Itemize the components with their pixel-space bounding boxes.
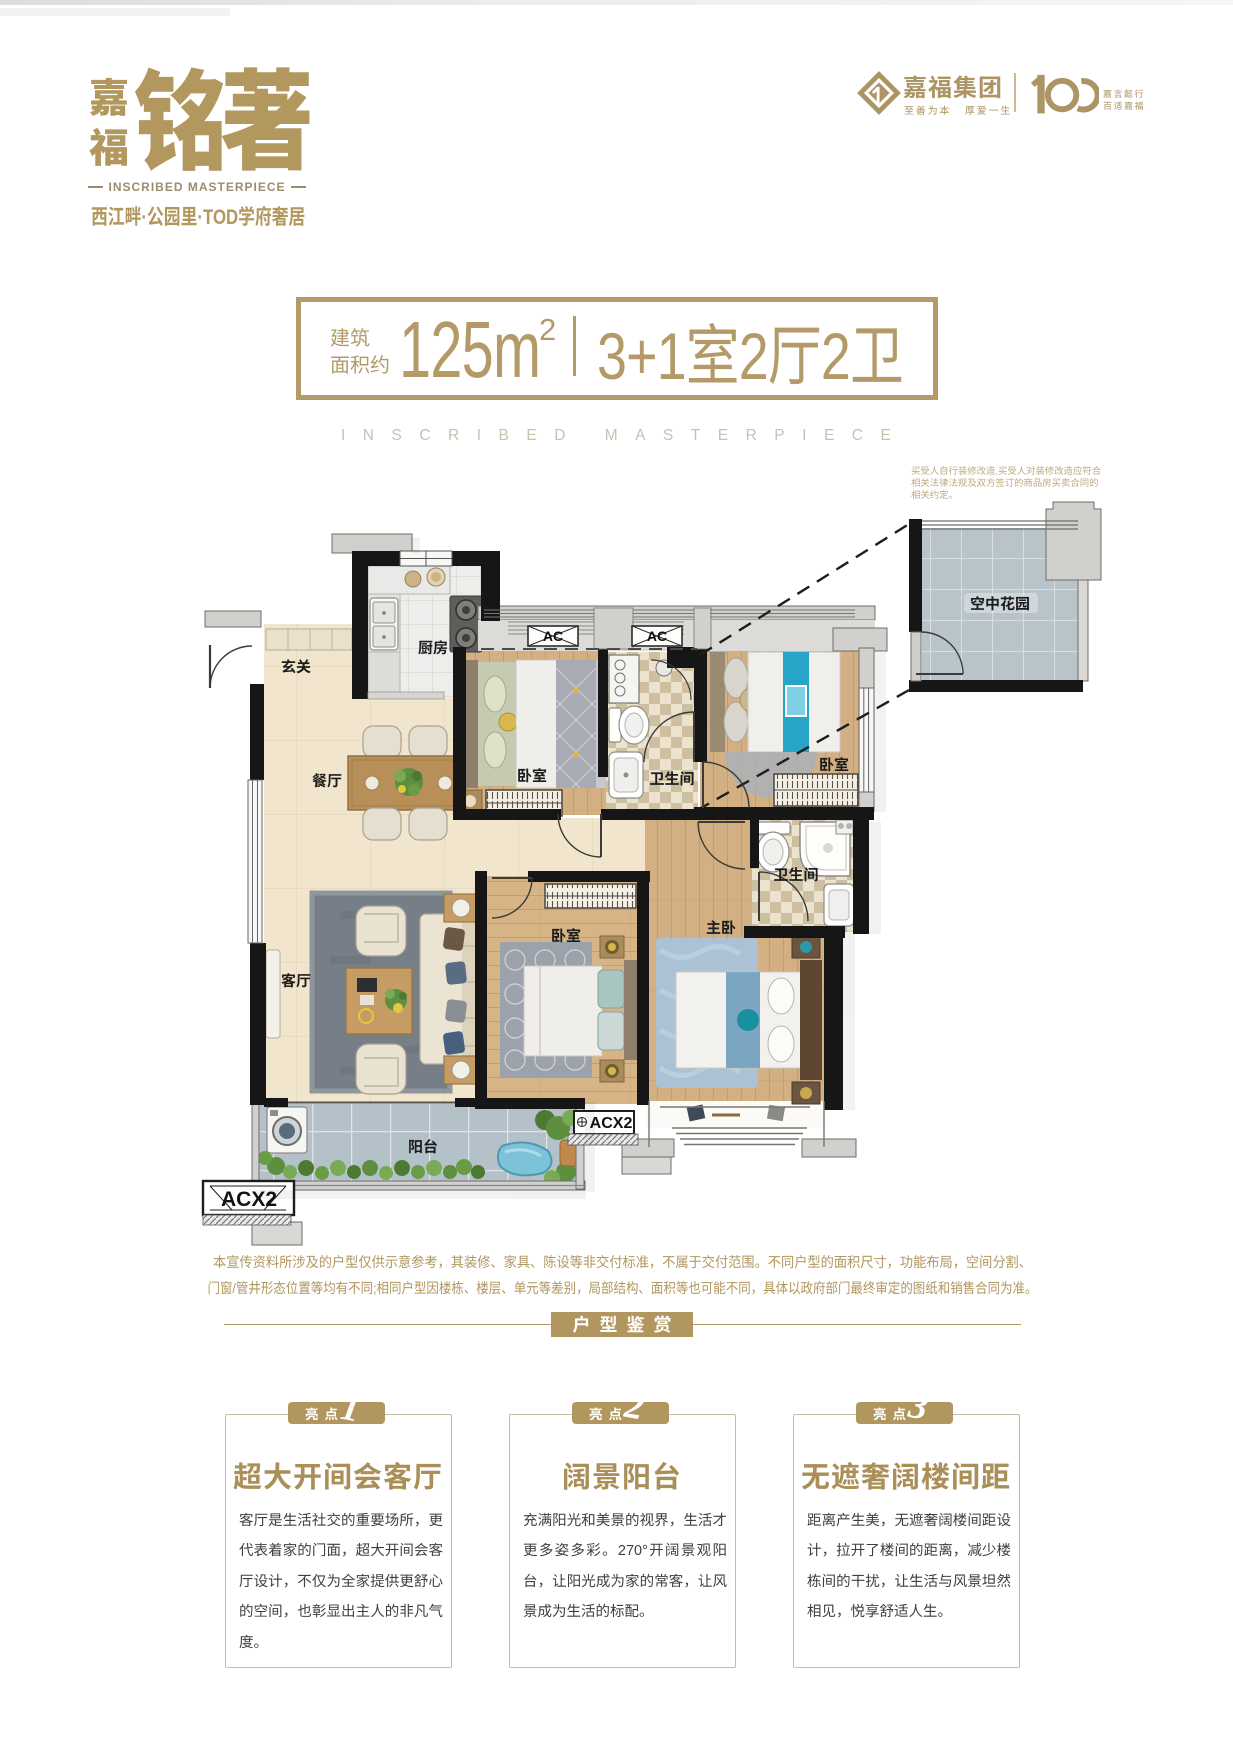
svg-text:客厅: 客厅 — [281, 970, 311, 991]
svg-text:ACX2: ACX2 — [590, 1115, 633, 1132]
svg-text:AC: AC — [647, 628, 667, 644]
svg-text:餐厅: 餐厅 — [312, 770, 342, 791]
svg-text:主卧: 主卧 — [706, 917, 736, 938]
svg-text:AC: AC — [543, 628, 563, 644]
svg-text:空中花园: 空中花园 — [970, 593, 1030, 614]
svg-text:厨房: 厨房 — [418, 637, 448, 658]
svg-text:卧室: 卧室 — [551, 925, 581, 946]
svg-text:玄关: 玄关 — [281, 656, 311, 677]
svg-text:阳台: 阳台 — [408, 1136, 438, 1157]
svg-text:卧室: 卧室 — [819, 754, 849, 775]
svg-text:卫生间: 卫生间 — [773, 864, 818, 885]
svg-text:卧室: 卧室 — [517, 765, 547, 786]
svg-text:卫生间: 卫生间 — [649, 768, 694, 789]
